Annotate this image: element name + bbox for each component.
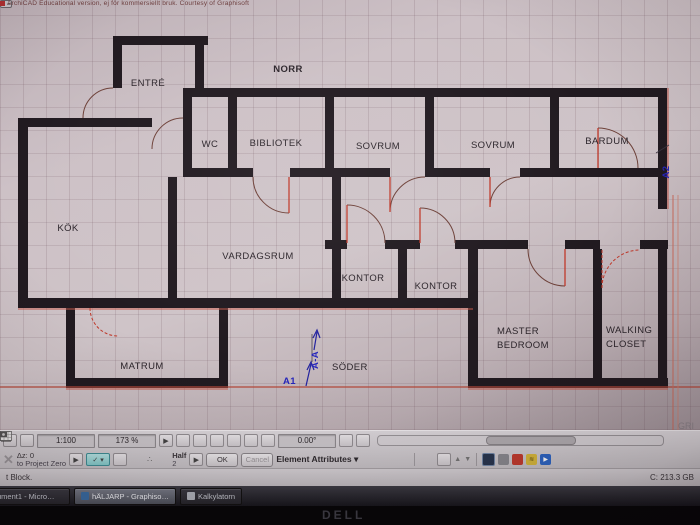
compass-label-soder: SÖDER <box>332 362 368 373</box>
monitor-bezel-bottom: DELL <box>0 506 700 525</box>
pan-arrows-icon[interactable] <box>20 434 34 447</box>
room-label-master-2: BEDROOM <box>497 340 549 351</box>
section-label-a1: A1 <box>283 376 296 387</box>
pen-check-icon[interactable] <box>130 453 144 466</box>
fit-view-icon[interactable] <box>356 434 370 447</box>
room-label-sovrum1: SOVRUM <box>356 141 400 152</box>
down-arrow-button[interactable]: ▼ <box>464 456 471 463</box>
snap-dots-icon[interactable]: ∴ <box>147 455 152 464</box>
ok-button[interactable]: OK <box>206 453 238 467</box>
yellow-tray-icon[interactable]: ≋ <box>526 454 537 465</box>
screen: ArchiCAD Educational version, ej för kom… <box>0 0 700 506</box>
section-label-a2: A2 <box>661 166 672 179</box>
room-label-closet-1: WALKING <box>606 325 652 336</box>
taskbar-item-archicad[interactable]: hÄLJARP - Graphiso… <box>74 488 176 505</box>
status-message: t Block. <box>6 473 32 482</box>
room-label-sovrum2: SOVRUM <box>471 140 515 151</box>
toolbar-row-2: ✕ Δz: 0 to Project Zero ▶ ✓ ▾ ∴ <box>0 450 700 469</box>
monitor: ArchiCAD Educational version, ej för kom… <box>0 0 700 525</box>
element-attributes-menu[interactable]: Element Attributes ▾ <box>276 454 358 465</box>
room-label-kok: KÖK <box>57 223 79 234</box>
navigator-tray-icon[interactable] <box>482 453 495 466</box>
canvas-corner-text: GRI <box>678 421 694 431</box>
zoom-plus-icon[interactable] <box>339 434 353 447</box>
scale-field[interactable]: 1:100 <box>37 434 95 448</box>
room-label-matrum: MATRUM <box>120 361 163 372</box>
cancel-button[interactable]: Cancel <box>241 453 273 467</box>
archicad-icon <box>81 492 89 500</box>
magnifier-icon[interactable] <box>210 434 224 447</box>
disk-status: C: 213.3 GB <box>650 473 694 482</box>
taskbar-item-calculator[interactable]: Kalkylatorn <box>180 488 242 505</box>
zoom-box-icon[interactable] <box>193 434 207 447</box>
screen-icon[interactable] <box>395 453 409 466</box>
walls[interactable] <box>18 36 668 388</box>
pan-hand-icon[interactable] <box>227 434 241 447</box>
room-label-norr: NORR <box>273 64 303 75</box>
angle-snap-icon[interactable] <box>155 453 169 466</box>
monitor-brand-logo: DELL <box>322 508 365 522</box>
floor-plan[interactable]: NORR ENTRÉ WC BIBLIOTEK SOVRUM SOVRUM BA… <box>0 0 700 430</box>
room-label-kontor1: KONTOR <box>342 273 385 284</box>
room-label-wc: WC <box>202 139 219 150</box>
zoom-menu-button[interactable]: ▶ <box>159 434 173 447</box>
toolbar-row-1: 1:100 173 % ▶ <box>0 431 700 450</box>
blue-play-tray-icon[interactable]: ▶ <box>540 454 551 465</box>
zoom-in-out-icon[interactable] <box>176 434 190 447</box>
red-tray-icon[interactable] <box>512 454 523 465</box>
horizontal-scrollbar[interactable] <box>377 435 664 446</box>
section-label-aa: A-A <box>310 351 321 369</box>
pin-icon[interactable] <box>378 453 392 466</box>
disk-space-value: C: 213.3 GB <box>650 473 694 482</box>
edu-banner-text: ArchiCAD Educational version, ej för kom… <box>7 0 249 7</box>
cancel-edit-icon[interactable]: ✕ <box>3 453 14 466</box>
confirm-tool-button[interactable]: ✓ ▾ <box>86 453 110 466</box>
status-bar: t Block. C: 213.3 GB <box>0 468 700 486</box>
reference-menu-button[interactable]: ▶ <box>69 453 83 466</box>
zoom-percent-field[interactable]: 173 % <box>98 434 156 448</box>
calculator-icon <box>187 492 195 500</box>
room-label-entre: ENTRÉ <box>131 78 165 89</box>
room-label-vardagsrum: VARDAGSRUM <box>222 251 293 262</box>
toolbar-separator-2 <box>476 453 477 466</box>
scrollbar-thumb[interactable] <box>486 436 576 445</box>
camera-tray-icon[interactable] <box>498 454 509 465</box>
room-label-kontor2: KONTOR <box>415 281 458 292</box>
half-snap-readout: Half 2 <box>172 452 186 467</box>
room-label-bibliotek: BIBLIOTEK <box>250 138 303 149</box>
cad-canvas[interactable]: ArchiCAD Educational version, ej för kom… <box>0 0 700 430</box>
windows-taskbar: ument1 - Micro… hÄLJARP - Graphiso… Kalk… <box>0 486 700 506</box>
line-tool-button[interactable] <box>113 453 127 466</box>
reference-level: to Project Zero <box>17 460 66 468</box>
toolbar-separator <box>414 453 415 466</box>
up-arrow-button[interactable]: ▲ <box>454 456 461 463</box>
snap-menu-button[interactable]: ▶ <box>189 453 203 466</box>
layers-lines-icon[interactable] <box>420 453 434 466</box>
app-icon <box>0 1 5 6</box>
orbit-icon[interactable] <box>244 434 258 447</box>
table-grid-icon[interactable] <box>437 453 451 466</box>
previous-view-icon[interactable] <box>261 434 275 447</box>
room-label-bardum: BARDUM <box>585 136 629 147</box>
printer-icon[interactable] <box>361 453 375 466</box>
taskbar-item-document[interactable]: ument1 - Micro… <box>0 488 70 505</box>
room-label-closet-2: CLOSET <box>606 339 646 350</box>
coordinate-readout: Δz: 0 to Project Zero <box>17 452 66 467</box>
bottom-toolbar: 1:100 173 % ▶ <box>0 430 700 468</box>
angle-field[interactable]: 0.00° <box>278 434 336 448</box>
room-label-master-1: MASTER <box>497 326 539 337</box>
half-value: 2 <box>172 460 186 468</box>
edu-banner: ArchiCAD Educational version, ej för kom… <box>0 0 249 7</box>
